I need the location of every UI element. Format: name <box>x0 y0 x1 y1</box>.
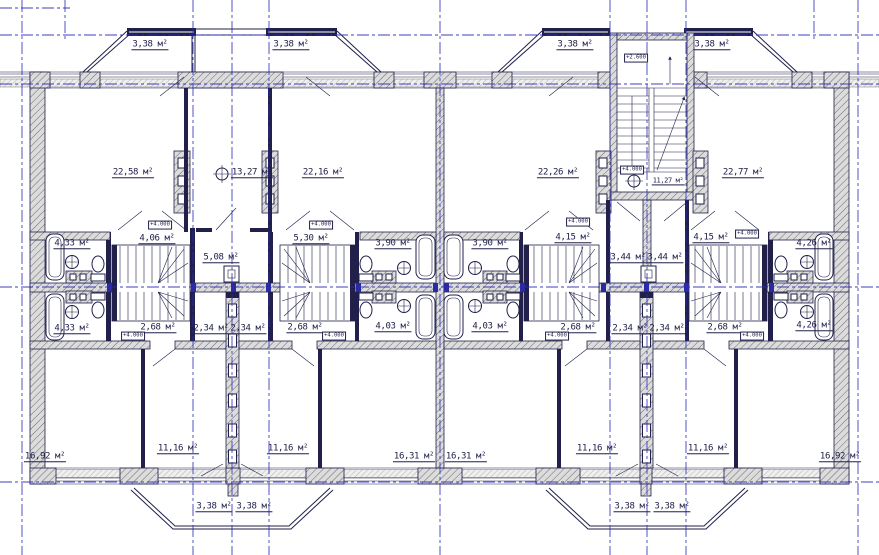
toilet-icon <box>507 256 519 272</box>
room-area-label: 4,06 м² <box>138 234 175 244</box>
room-area-label: 4,03 м² <box>374 322 411 332</box>
room-area-label: 3,38 м² <box>556 40 593 50</box>
room-area-label: 2,34 м² <box>229 324 266 334</box>
elevation-mark: +4.000 <box>545 332 569 341</box>
elevation-mark: +4.000 <box>620 166 644 175</box>
room-area-label: 16,92 м² <box>819 452 861 462</box>
elevation-mark: +4.000 <box>148 221 172 230</box>
toilet-icon <box>775 256 787 272</box>
room-area-label: 3,44 м² <box>646 253 683 263</box>
room-area-label: 3,90 м² <box>471 239 508 249</box>
level-mark-icon <box>213 165 231 183</box>
room-area-label: 4,03 м² <box>471 322 508 332</box>
room-area-label: 11,16 м² <box>687 444 729 454</box>
room-area-label: 3,90 м² <box>374 239 411 249</box>
room-area-label: 2,68 м² <box>286 323 323 333</box>
elevation-mark: +4.000 <box>322 332 346 341</box>
toilet-icon <box>360 302 372 318</box>
room-area-label: 3,38 м² <box>272 40 309 50</box>
room-area-label: 4,26 м² <box>795 321 832 331</box>
room-area-label: 3,38 м² <box>131 40 168 50</box>
room-area-label: 11,16 м² <box>267 444 309 454</box>
room-area-label: 2,34 м² <box>192 324 229 334</box>
room-area-label: 16,92 м² <box>24 452 66 462</box>
floor-plan: 3,38 м²3,38 м²3,38 м²3,38 м²22,58 м²13,2… <box>0 0 879 555</box>
elevation-mark: +2.600 <box>624 54 648 63</box>
room-area-label: 2,34 м² <box>611 324 648 334</box>
room-area-label: 3,38 м² <box>653 502 690 512</box>
room-area-label: 22,58 м² <box>112 168 154 178</box>
room-area-label: 4,33 м² <box>53 324 90 334</box>
room-area-label: 3,38 м² <box>235 502 272 512</box>
room-area-label: 3,44 м² <box>609 253 646 263</box>
room-area-label: 5,30 м² <box>292 234 329 244</box>
room-area-label: 22,26 м² <box>537 168 579 178</box>
room-area-label: 2,68 м² <box>706 323 743 333</box>
room-area-label: 11,16 м² <box>576 444 618 454</box>
room-area-label: 22,16 м² <box>302 168 344 178</box>
floor-plan-drawing <box>0 0 879 555</box>
room-area-label: 11,27 м² <box>652 177 685 185</box>
toilet-icon <box>507 302 519 318</box>
elevation-mark: +4.000 <box>740 332 764 341</box>
room-area-label: 3,38 м² <box>693 40 730 50</box>
room-area-label: 4,26 м² <box>795 239 832 249</box>
elevation-mark: +4.000 <box>735 230 759 239</box>
room-area-label: 2,68 м² <box>139 323 176 333</box>
room-area-label: 2,34 м² <box>648 324 685 334</box>
toilet-icon <box>775 302 787 318</box>
room-area-label: 5,08 м² <box>202 253 239 263</box>
elevation-mark: +4.000 <box>121 332 145 341</box>
room-area-label: 3,38 м² <box>613 502 650 512</box>
toilet-icon <box>92 302 104 318</box>
room-area-label: 16,31 м² <box>445 452 487 462</box>
elevation-mark: +4.000 <box>309 221 333 230</box>
elevation-mark: +4.000 <box>566 218 590 227</box>
toilet-icon <box>92 256 104 272</box>
room-area-label: 16,31 м² <box>393 452 435 462</box>
room-area-label: 3,38 м² <box>195 502 232 512</box>
room-area-label: 11,16 м² <box>157 444 199 454</box>
room-area-label: 22,77 м² <box>722 168 764 178</box>
room-area-label: 4,15 м² <box>554 233 591 243</box>
room-area-label: 13,27 м² <box>231 168 273 178</box>
room-area-label: 4,15 м² <box>692 233 729 243</box>
room-area-label: 4,33 м² <box>53 239 90 249</box>
toilet-icon <box>360 256 372 272</box>
stair-tower <box>610 33 694 200</box>
